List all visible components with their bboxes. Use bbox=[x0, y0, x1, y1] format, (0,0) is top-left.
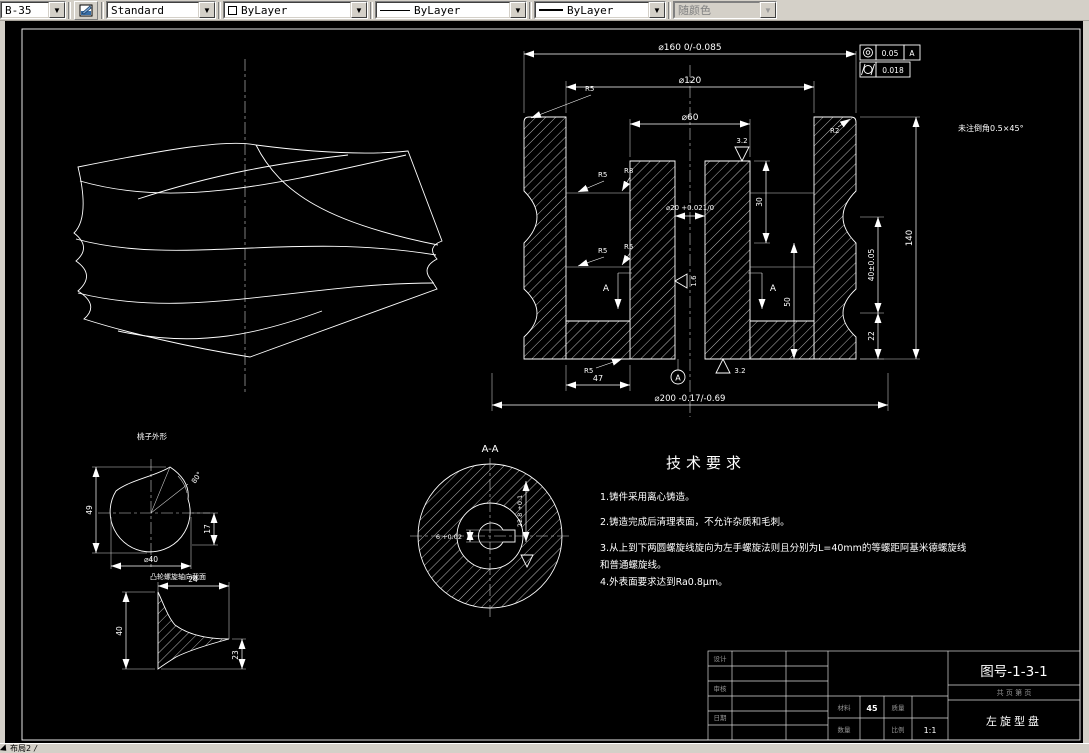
mass-label: 质量 bbox=[892, 703, 906, 712]
date-label: 日期 bbox=[714, 714, 728, 722]
radius-label-r5-bottom: R5 bbox=[584, 367, 593, 375]
cam-offset-label: 17 bbox=[203, 524, 212, 534]
dim-label-v40: 40±0.05 bbox=[867, 249, 876, 282]
hatch-floor-left bbox=[566, 321, 630, 359]
leader-r8-upper bbox=[622, 177, 630, 191]
gdt-cyl-value: 0.018 bbox=[882, 66, 904, 75]
finish-mark-hub-top bbox=[735, 147, 749, 161]
leader-r5-bottom bbox=[596, 359, 622, 368]
color-swatch bbox=[228, 6, 237, 15]
design-label: 设计 bbox=[714, 654, 728, 663]
dim-label-v140: 140 bbox=[905, 230, 915, 246]
layout-tab-corner-icon bbox=[0, 744, 9, 753]
cam-angle-label: 80° bbox=[190, 470, 204, 485]
toolbar-separator bbox=[529, 2, 532, 19]
linetype-sample bbox=[380, 10, 410, 11]
spiral-height-label: 40 bbox=[115, 626, 124, 636]
dim-label-v30: 30 bbox=[755, 197, 764, 207]
title-block: 设计 审核 日期 材料 45 质量 数量 比例 1:1 图号-1-3-1 共 页… bbox=[708, 651, 1080, 740]
check-label: 审核 bbox=[714, 684, 728, 693]
cam-profile-view: 桃子外形 80° 49 17 ⌀40 bbox=[85, 431, 218, 569]
worm-flight-5 bbox=[256, 145, 438, 245]
layout-tab-separator: / bbox=[34, 744, 37, 753]
hatch-hub-right bbox=[705, 161, 750, 359]
layer-combo-value: B-35 bbox=[5, 4, 32, 17]
worm-flight-4 bbox=[118, 311, 322, 339]
leader-r5-top bbox=[531, 95, 591, 118]
worm-flight-1 bbox=[80, 155, 406, 193]
color-arrow-icon[interactable]: ▼ bbox=[351, 2, 367, 18]
tech-req-item-3b: 和普通螺旋线。 bbox=[600, 559, 667, 571]
worm-flight-6 bbox=[138, 155, 348, 199]
lineweight-combo[interactable]: ByLayer ▼ bbox=[534, 1, 666, 19]
hatch-hub-left bbox=[630, 161, 675, 359]
spiral-section-view: 凸轮螺旋轴向截面 24 40 23 bbox=[115, 572, 246, 669]
radius-label-r2: R2 bbox=[830, 127, 839, 135]
layer-combo[interactable]: B-35 ▼ bbox=[0, 1, 66, 19]
sheet-info: 共 页 第 页 bbox=[997, 688, 1032, 697]
section-aa-label: A-A bbox=[482, 444, 499, 455]
spiral-ext-height bbox=[122, 592, 155, 669]
part-name: 左旋型盘 bbox=[986, 714, 1042, 728]
dim-label-d60: ⌀60 bbox=[682, 113, 699, 123]
radius-label-r5-lower-b: R5 bbox=[624, 243, 633, 251]
linetype-value: ByLayer bbox=[414, 4, 460, 17]
plot-style-arrow-icon: ▼ bbox=[760, 2, 776, 18]
linetype-combo[interactable]: ByLayer ▼ bbox=[375, 1, 527, 19]
leader-r5-lower-a bbox=[578, 257, 604, 266]
spiral-depth-label: 23 bbox=[231, 650, 240, 660]
gdt-frames: 0.05 A 0.018 bbox=[860, 45, 920, 77]
tech-req-title: 技术要求 bbox=[666, 454, 746, 472]
cam-outline bbox=[110, 467, 190, 552]
technical-requirements: 技术要求 1.铸件采用离心铸造。 2.铸造完成后清理表面，不允许杂质和毛刺。 3… bbox=[600, 454, 967, 588]
leader-r5-upper bbox=[578, 181, 604, 192]
make-layer-current-button[interactable] bbox=[74, 1, 98, 20]
gdt-runout-value: 0.05 bbox=[882, 49, 899, 58]
hatch-floor-right bbox=[750, 321, 814, 359]
linetype-arrow-icon[interactable]: ▼ bbox=[510, 2, 526, 18]
radius-label-r5-lower-a: R5 bbox=[598, 247, 607, 255]
lineweight-arrow-icon[interactable]: ▼ bbox=[649, 2, 665, 18]
worm-flight-3 bbox=[78, 283, 434, 303]
toolbar-separator bbox=[101, 2, 104, 19]
object-properties-toolbar: B-35 ▼ Standard ▼ ByLayer ▼ ByLayer ▼ bbox=[0, 0, 1089, 21]
finish-label-bottom: 3.2 bbox=[734, 367, 745, 375]
cam-height-label: 49 bbox=[85, 505, 94, 515]
dim-label-v47: 47 bbox=[593, 374, 603, 383]
main-section-view: ⌀160 0/-0.085 ⌀120 ⌀60 ⌀20 +0.021/0 ⌀200… bbox=[492, 43, 1024, 417]
qty-label: 数量 bbox=[838, 725, 852, 734]
dim-label-v22: 22 bbox=[867, 331, 876, 341]
lineweight-value: ByLayer bbox=[567, 4, 613, 17]
radius-label-r8-upper: R8 bbox=[624, 167, 633, 175]
toolbar-separator bbox=[68, 2, 71, 19]
toolbar-separator bbox=[218, 2, 221, 19]
dim-label-d20: ⌀20 +0.021/0 bbox=[666, 204, 714, 212]
chamfer-note: 未注倒角0.5×45° bbox=[958, 123, 1024, 133]
hatch-right-wall bbox=[814, 117, 856, 359]
spiral-width-label: 24 bbox=[188, 575, 198, 584]
leader-r5-lower-b bbox=[622, 253, 630, 265]
cylindricity-icon bbox=[864, 66, 872, 74]
layout-tab[interactable]: 布局2 bbox=[10, 743, 31, 753]
toolbar-separator bbox=[668, 2, 671, 19]
text-style-value: Standard bbox=[111, 4, 164, 17]
radius-label-r5-upper: R5 bbox=[598, 171, 607, 179]
status-bar: 布局2 / bbox=[0, 743, 1089, 753]
autocad-window: B-35 ▼ Standard ▼ ByLayer ▼ ByLayer ▼ bbox=[0, 0, 1089, 753]
dim-label-d120: ⌀120 bbox=[679, 76, 702, 86]
aa-slot-depth-label: 22.8 +0.1 bbox=[516, 495, 524, 527]
lineweight-sample bbox=[539, 9, 563, 11]
dim-label-d160: ⌀160 0/-0.085 bbox=[658, 43, 721, 53]
layer-combo-arrow-icon[interactable]: ▼ bbox=[49, 2, 65, 18]
section-arrow-label-right: A bbox=[770, 284, 777, 294]
aa-slot-width-label: 6 +0.02 bbox=[436, 533, 462, 541]
cam-dia-label: ⌀40 bbox=[144, 555, 158, 564]
text-style-arrow-icon[interactable]: ▼ bbox=[199, 2, 215, 18]
finish-label-hub-top: 3.2 bbox=[736, 137, 747, 145]
color-combo[interactable]: ByLayer ▼ bbox=[223, 1, 368, 19]
material-value: 45 bbox=[866, 704, 878, 713]
worm-outline bbox=[74, 143, 442, 357]
dim-label-d200: ⌀200 -0.17/-0.69 bbox=[655, 394, 726, 404]
tech-req-item-2: 2.铸造完成后清理表面，不允许杂质和毛刺。 bbox=[600, 516, 790, 528]
drawing-canvas[interactable]: ⌀160 0/-0.085 ⌀120 ⌀60 ⌀20 +0.021/0 ⌀200… bbox=[5, 21, 1083, 743]
plot-style-value: 随颜色 bbox=[678, 2, 711, 18]
section-arrow-label-left: A bbox=[603, 284, 610, 294]
finish-mark-bore bbox=[675, 274, 687, 288]
color-value: ByLayer bbox=[241, 4, 287, 17]
text-style-combo[interactable]: Standard ▼ bbox=[106, 1, 216, 19]
cam-title: 桃子外形 bbox=[137, 431, 167, 441]
dim-label-v50: 50 bbox=[783, 297, 792, 307]
spiral-outline bbox=[158, 592, 229, 669]
finish-label-bore: 1.6 bbox=[690, 275, 698, 287]
material-label: 材料 bbox=[838, 703, 852, 712]
worm-profile-view bbox=[74, 59, 442, 393]
drawing-number: 图号-1-3-1 bbox=[980, 664, 1047, 680]
section-aa-view: A-A 6 +0.02 22.8 +0.1 bbox=[410, 444, 570, 618]
gdt-runout-datum: A bbox=[909, 49, 915, 58]
tech-req-item-4: 4.外表面要求达到Ra0.8μm。 bbox=[600, 576, 728, 588]
scale-value: 1:1 bbox=[924, 726, 937, 735]
concentricity-icon bbox=[864, 48, 873, 57]
toolbar-separator bbox=[370, 2, 373, 19]
tech-req-item-3: 3.从上到下两圆螺旋线旋向为左手螺旋法则且分别为L=40mm的等螺距阿基米德螺旋… bbox=[600, 542, 967, 554]
radius-label-r5-top: R5 bbox=[585, 85, 594, 93]
layout-paper-space: ⌀160 0/-0.085 ⌀120 ⌀60 ⌀20 +0.021/0 ⌀200… bbox=[5, 21, 1083, 743]
hatch-left-wall bbox=[524, 117, 566, 359]
finish-mark-bottom bbox=[716, 359, 730, 373]
scale-label: 比例 bbox=[892, 725, 905, 734]
plot-style-combo: 随颜色 ▼ bbox=[673, 1, 777, 19]
tech-req-item-1: 1.铸件采用离心铸造。 bbox=[600, 491, 695, 503]
worm-flight-2 bbox=[76, 239, 436, 255]
datum-label: A bbox=[675, 374, 681, 383]
make-layer-current-icon bbox=[79, 3, 94, 18]
cam-angle-lines bbox=[151, 467, 188, 513]
